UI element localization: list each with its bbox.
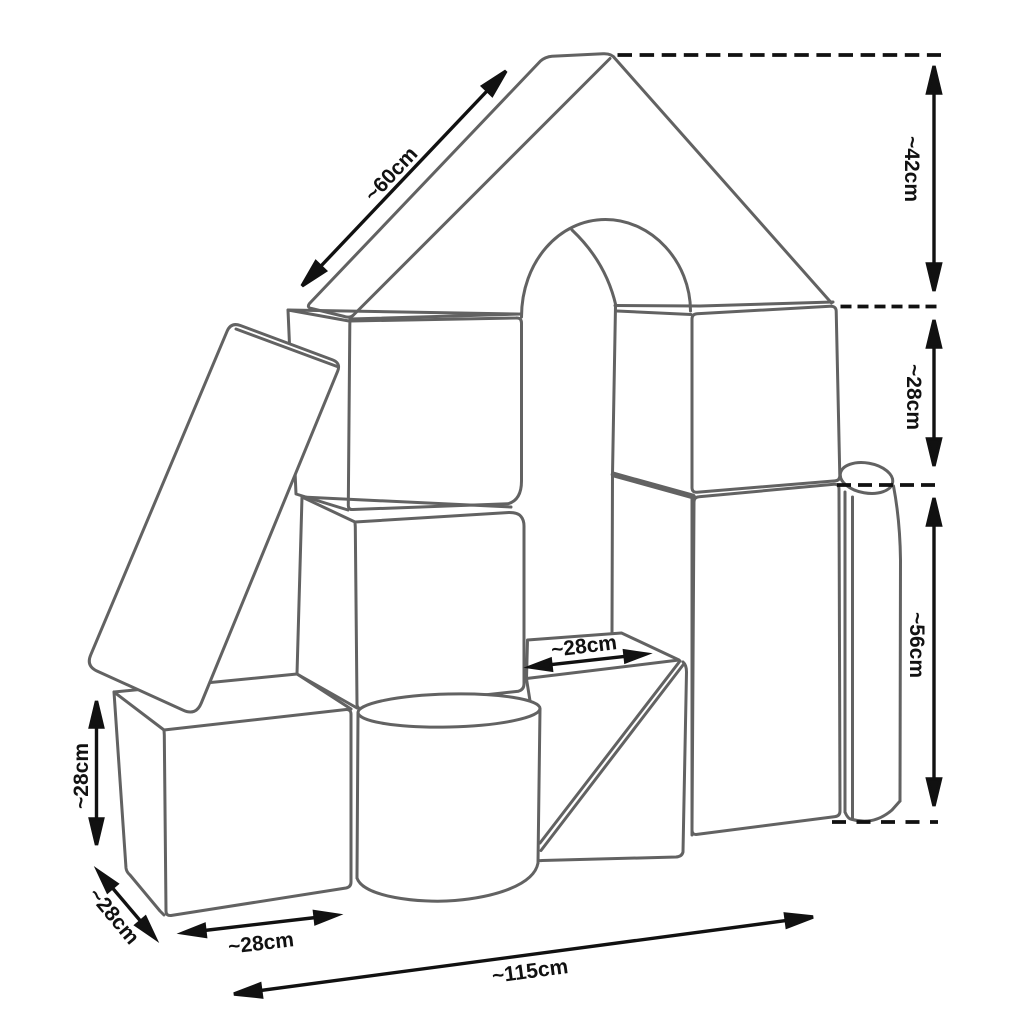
svg-text:~56cm: ~56cm: [905, 612, 928, 678]
svg-text:~28cm: ~28cm: [902, 364, 925, 430]
svg-text:~42cm: ~42cm: [900, 136, 923, 202]
svg-text:~28cm: ~28cm: [70, 743, 93, 809]
